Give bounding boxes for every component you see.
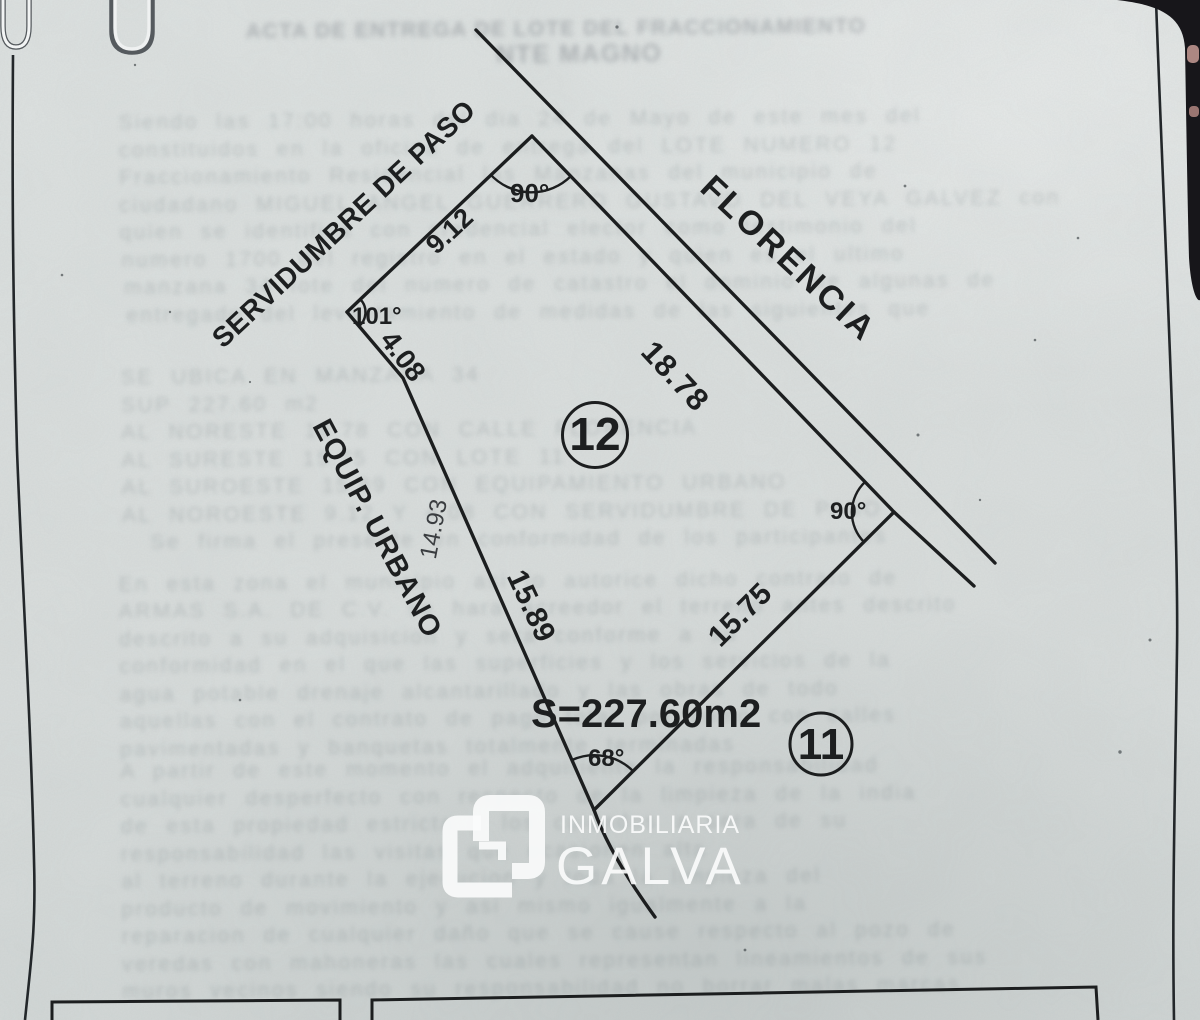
svg-text:GALVA: GALVA — [556, 837, 745, 896]
svg-text:INMOBILIARIA: INMOBILIARIA — [560, 811, 740, 839]
